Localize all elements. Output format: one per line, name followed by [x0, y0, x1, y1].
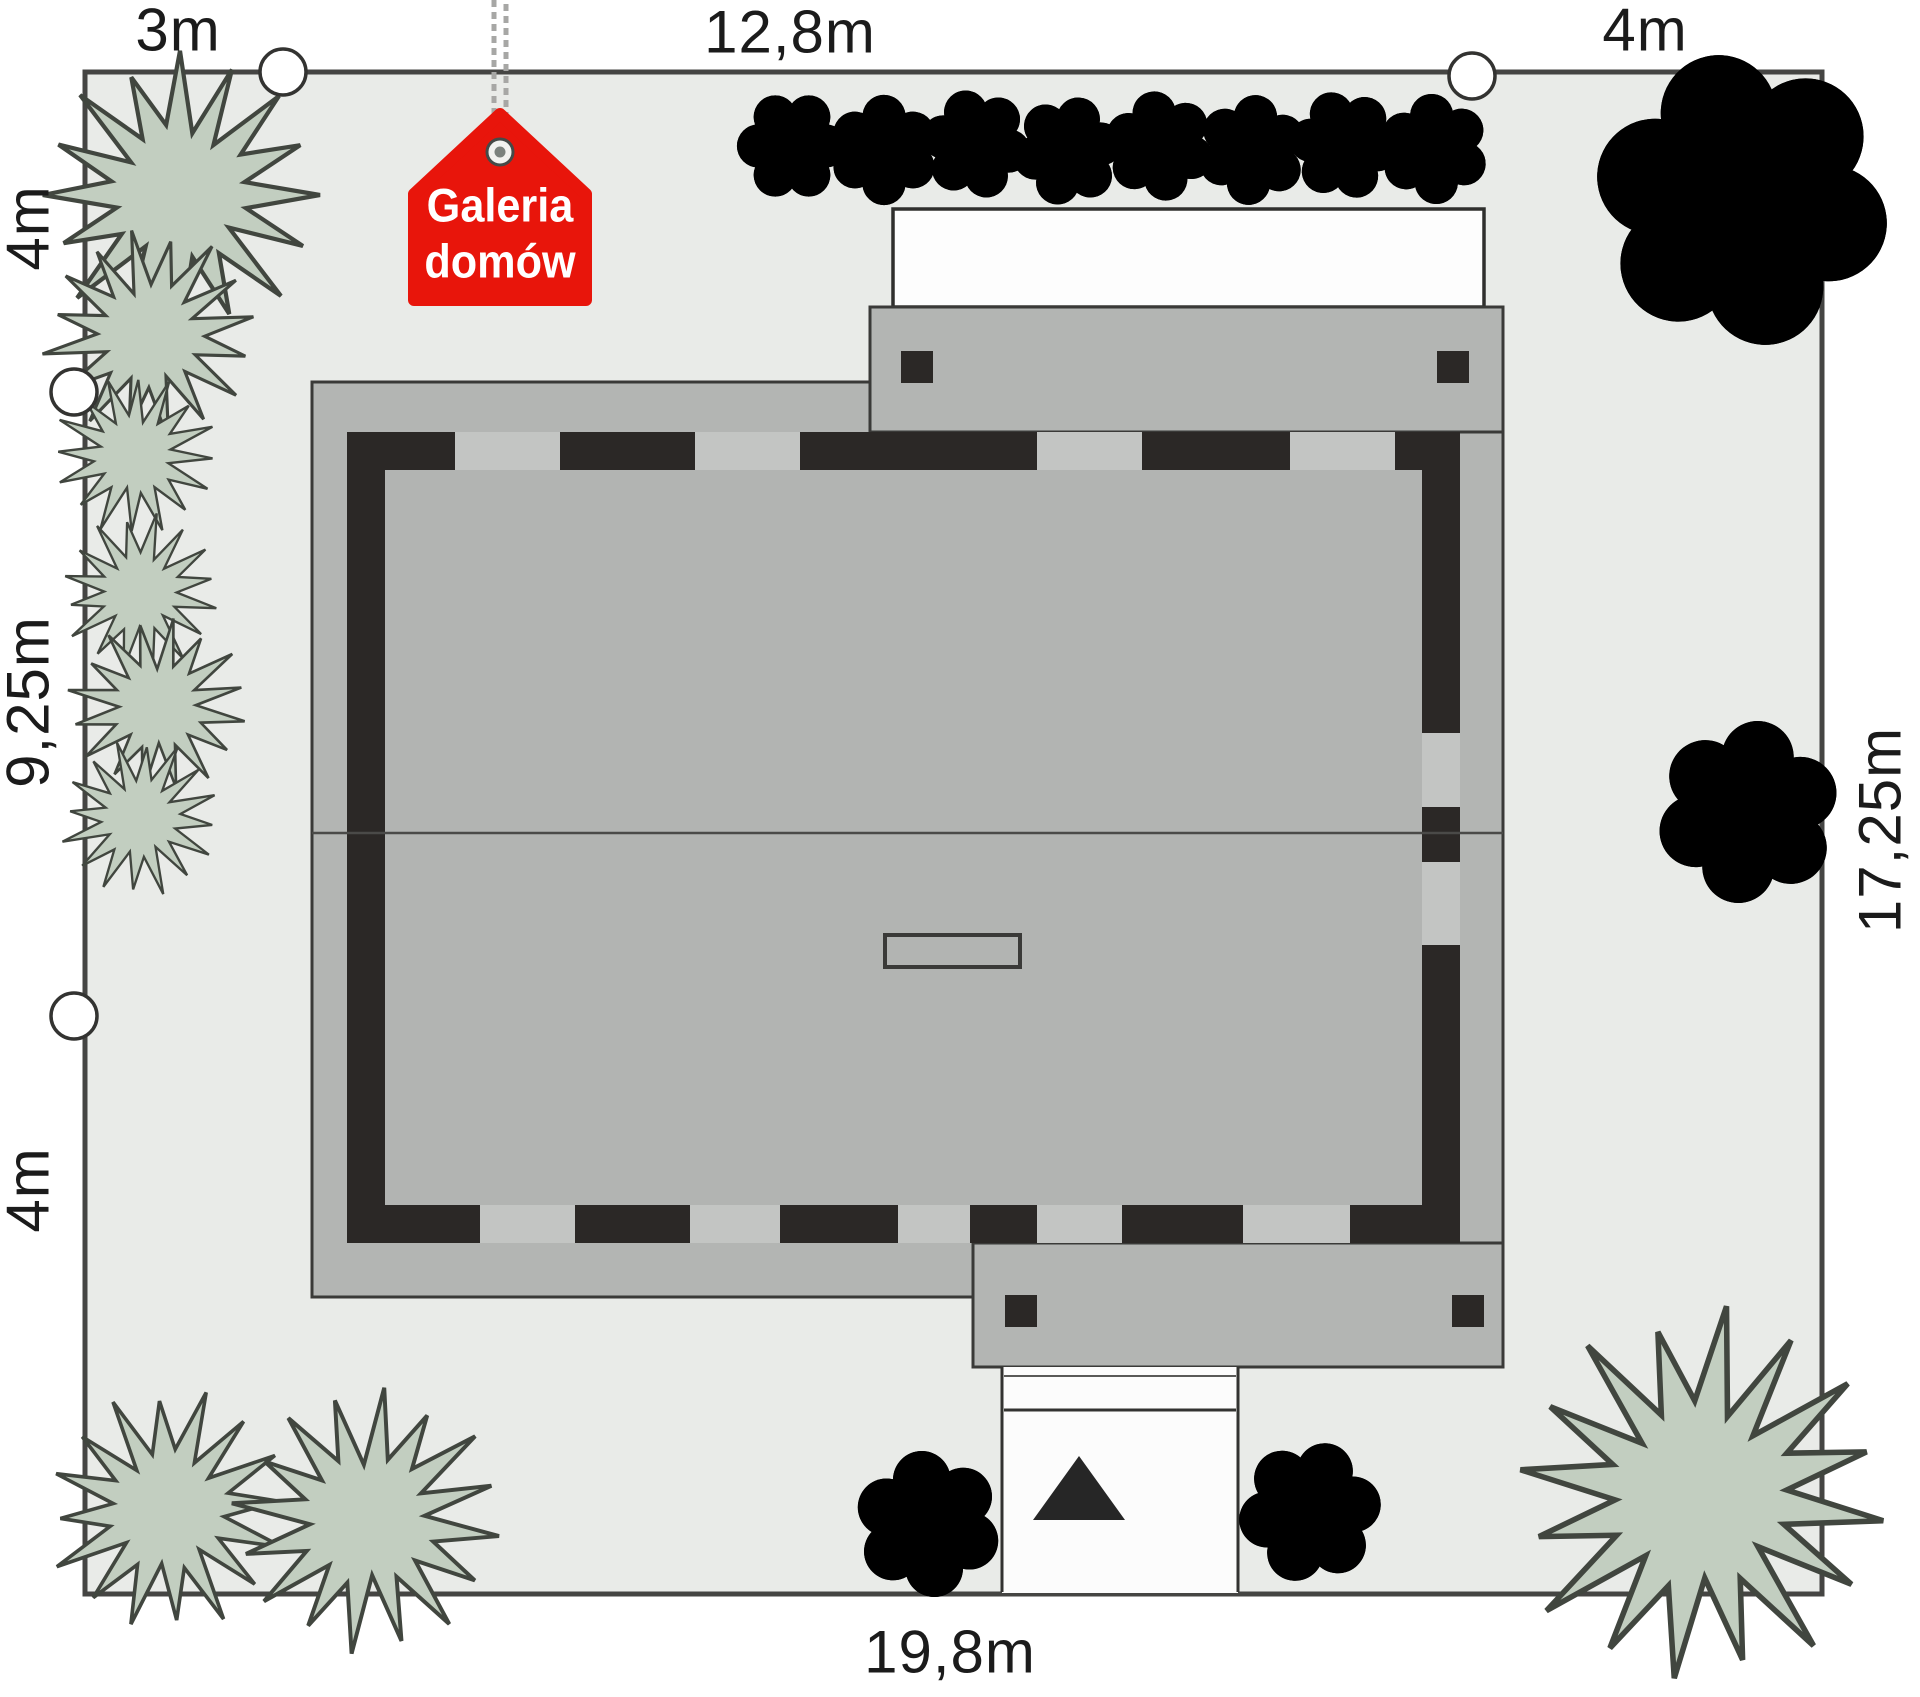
house-interior — [385, 470, 1422, 1205]
survey-point-icon — [51, 993, 97, 1039]
survey-point-icon — [51, 369, 97, 415]
porch-column-icon — [1437, 351, 1469, 383]
window-icon — [480, 1205, 575, 1243]
window-icon — [898, 1205, 970, 1243]
dim-right-side: 17,25m — [1846, 727, 1915, 933]
window-icon — [1422, 862, 1460, 945]
window-icon — [1037, 1205, 1122, 1243]
driveway — [1002, 1367, 1238, 1593]
dim-top-right: 4m — [1602, 0, 1687, 65]
window-icon — [1422, 733, 1460, 807]
window-icon — [695, 432, 800, 470]
dim-top-center: 12,8m — [704, 0, 876, 67]
logo-text-line2: domów — [424, 234, 575, 289]
window-icon — [1037, 432, 1142, 470]
dim-left-top: 4m — [0, 185, 63, 270]
dim-left-middle: 9,25m — [0, 616, 63, 788]
site-plan-drawing — [0, 0, 1920, 1697]
site-plan-canvas: Galeria domów 3m 12,8m 4m 4m 9,25m 4m 17… — [0, 0, 1920, 1697]
porch-column-icon — [1005, 1295, 1037, 1327]
window-icon — [1290, 432, 1395, 470]
window-icon — [690, 1205, 780, 1243]
terrace — [893, 209, 1484, 307]
dim-left-bottom: 4m — [0, 1147, 63, 1232]
dim-bottom: 19,8m — [864, 1618, 1036, 1687]
porch-column-icon — [901, 351, 933, 383]
porch-column-icon — [1452, 1295, 1484, 1327]
survey-point-icon — [1449, 53, 1495, 99]
dim-top-left: 3m — [135, 0, 220, 65]
logo-grommet-icon — [495, 147, 506, 158]
entrance-door-icon — [1243, 1205, 1350, 1243]
logo-text-line1: Galeria — [427, 178, 574, 233]
south-porch — [973, 1243, 1503, 1367]
survey-point-icon — [260, 49, 306, 95]
window-icon — [455, 432, 560, 470]
north-porch — [870, 307, 1503, 432]
chimney — [885, 935, 1020, 967]
